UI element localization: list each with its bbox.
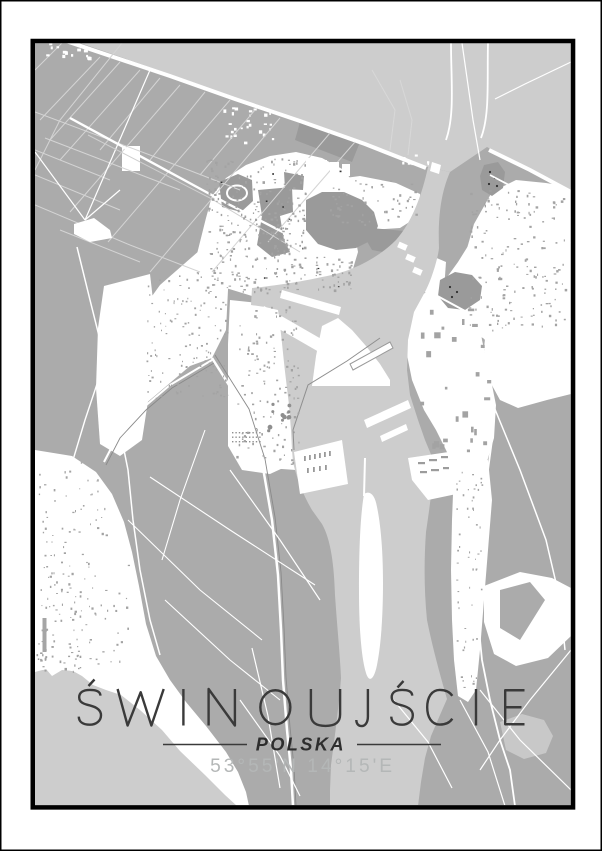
svg-text:POLSKA: POLSKA: [256, 735, 346, 755]
svg-text:53°55'N 14°15'E: 53°55'N 14°15'E: [210, 756, 395, 777]
